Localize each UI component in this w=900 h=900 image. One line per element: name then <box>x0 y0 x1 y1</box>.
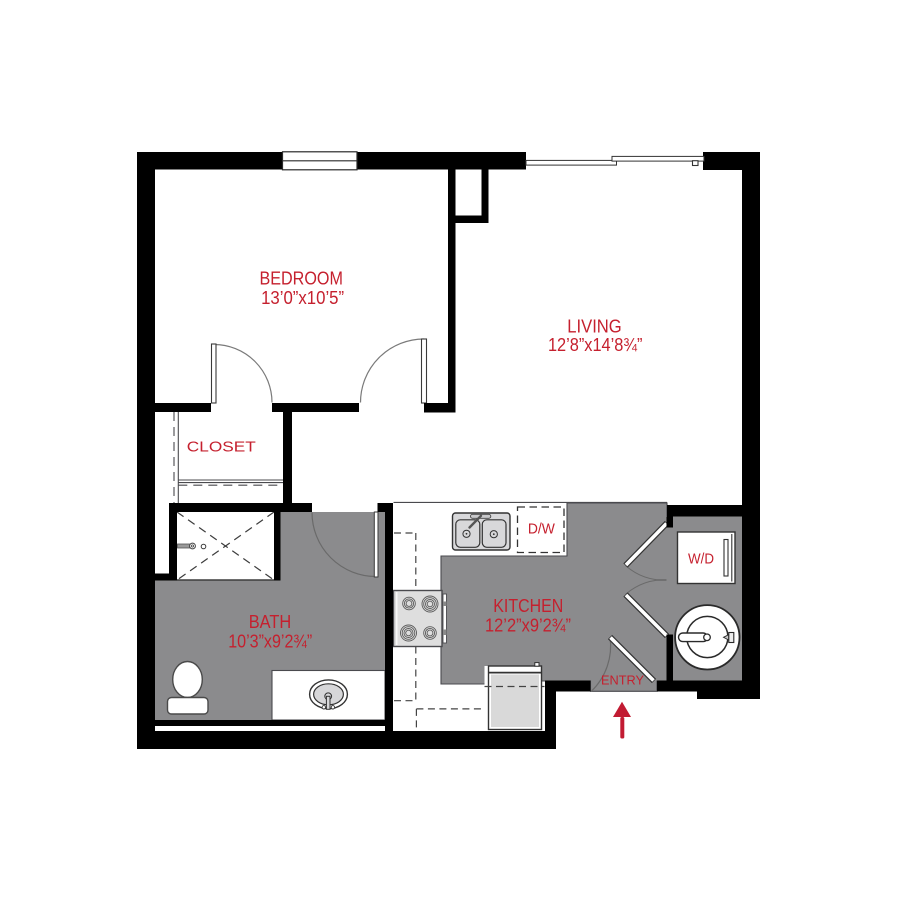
svg-text:13’0”x10’5”: 13’0”x10’5” <box>261 287 344 308</box>
svg-text:W/D: W/D <box>688 552 714 568</box>
svg-text:D/W: D/W <box>528 522 555 538</box>
svg-text:CLOSET: CLOSET <box>187 439 256 456</box>
svg-text:BEDROOM: BEDROOM <box>259 269 343 289</box>
svg-text:12’8”x14’8¾”: 12’8”x14’8¾” <box>548 334 643 355</box>
svg-text:10’3”x9’2¾”: 10’3”x9’2¾” <box>228 631 312 652</box>
svg-text:ENTRY: ENTRY <box>601 673 645 687</box>
svg-text:12’2”x9’2¾”: 12’2”x9’2¾” <box>485 615 571 636</box>
svg-text:BATH: BATH <box>249 611 292 632</box>
svg-text:KITCHEN: KITCHEN <box>493 595 563 616</box>
